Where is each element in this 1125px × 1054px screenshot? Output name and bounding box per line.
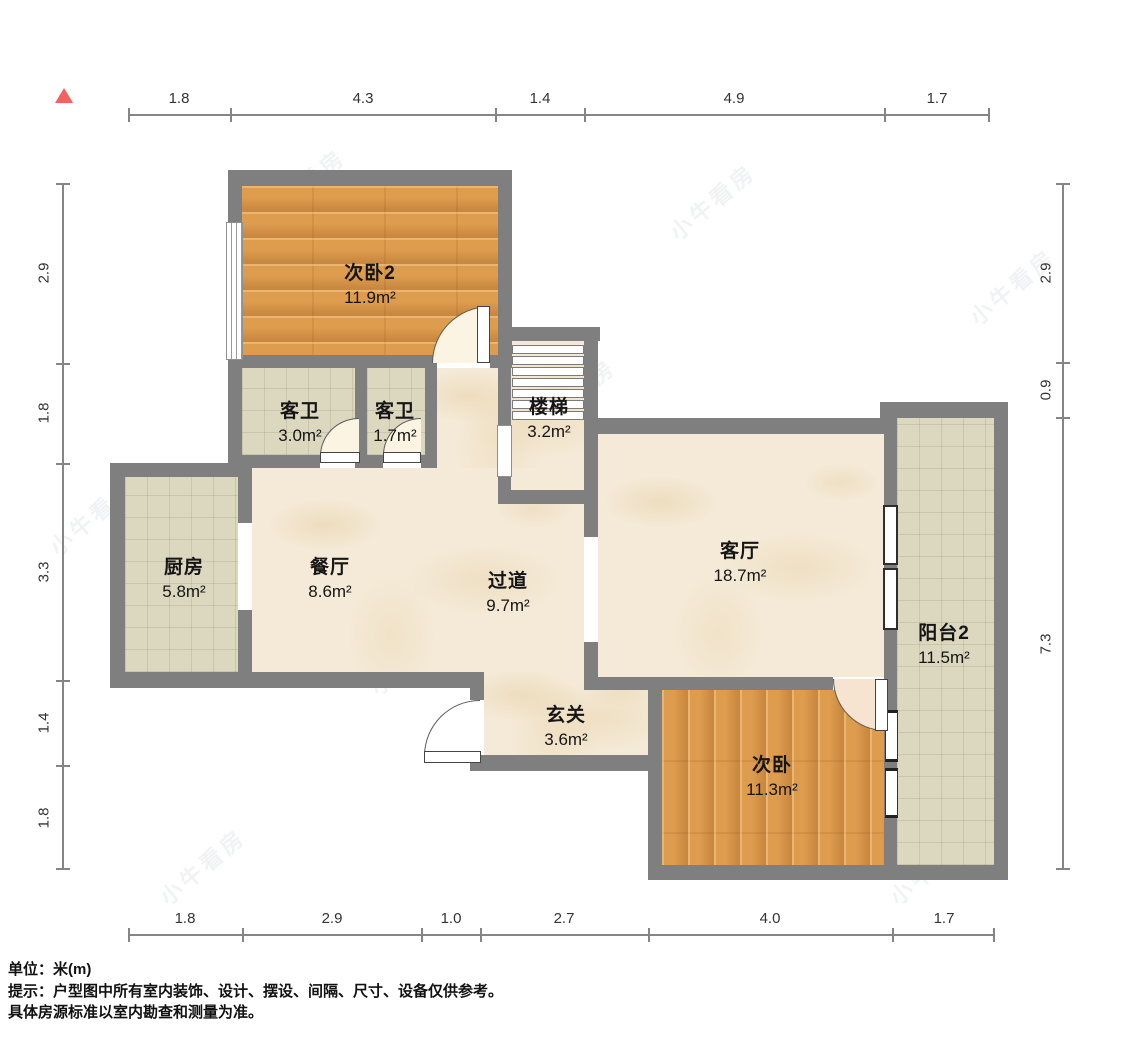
unit-note: 单位：米(m) xyxy=(8,960,91,979)
room-area: 18.7m² xyxy=(714,566,767,586)
dim-tick xyxy=(988,108,990,122)
dim-tick xyxy=(884,108,886,122)
wall xyxy=(598,418,885,434)
wall xyxy=(238,463,252,523)
dim-value: 2.9 xyxy=(36,263,53,284)
dim-tick xyxy=(56,183,70,185)
dim-value: 3.3 xyxy=(36,562,53,583)
wall xyxy=(648,677,662,877)
room-label-living: 客厅 18.7m² xyxy=(714,536,767,586)
wall xyxy=(648,865,1008,880)
dim-line xyxy=(128,934,995,936)
wall xyxy=(421,455,437,468)
floor-plan: 小牛看房 小牛看房 小牛看房 小牛看房 小牛看房 小牛看房 小牛看房 小牛看房 … xyxy=(0,0,1125,1054)
door-leaf xyxy=(875,679,888,731)
room-label-bedroom2: 次卧2 11.9m² xyxy=(344,258,396,308)
room-label-foyer: 玄关 3.6m² xyxy=(544,700,587,750)
room-name: 客卫 xyxy=(278,396,321,423)
room-name: 客厅 xyxy=(714,536,767,563)
door-leaf xyxy=(320,452,360,463)
wall xyxy=(584,677,833,690)
room-area: 3.0m² xyxy=(278,426,321,446)
watermark: 小牛看房 xyxy=(152,820,252,911)
stair-step xyxy=(512,367,584,376)
stair-step xyxy=(512,356,584,365)
dim-tick xyxy=(128,108,130,122)
dim-value: 4.9 xyxy=(724,90,745,107)
room-name: 客卫 xyxy=(373,396,416,423)
dim-tick xyxy=(56,868,70,870)
wall xyxy=(110,672,484,688)
disclaimer-line1: 提示：户型图中所有室内装饰、设计、摆设、间隔、尺寸、设备仅供参考。 xyxy=(8,982,503,1001)
dim-tick xyxy=(128,928,130,942)
dim-tick xyxy=(648,928,650,942)
room-name: 厨房 xyxy=(162,552,205,579)
wall xyxy=(228,170,512,186)
balcony-glass-door xyxy=(883,505,898,565)
wall xyxy=(994,402,1008,880)
dim-tick xyxy=(1056,362,1070,364)
room-name: 次卧2 xyxy=(344,258,396,285)
dim-value: 7.3 xyxy=(1038,634,1055,655)
dim-tick xyxy=(495,108,497,122)
room-name: 餐厅 xyxy=(308,552,351,579)
window xyxy=(885,768,898,818)
room-area: 11.3m² xyxy=(746,780,798,800)
dim-tick xyxy=(584,108,586,122)
room-name: 过道 xyxy=(486,566,529,593)
room-name: 阳台2 xyxy=(918,618,970,645)
dim-value: 2.9 xyxy=(1038,263,1055,284)
room-name: 次卧 xyxy=(746,750,798,777)
entry-door-arc xyxy=(424,700,480,756)
dim-value: 1.8 xyxy=(36,808,53,829)
dim-value: 0.9 xyxy=(1038,380,1055,401)
dim-value: 1.8 xyxy=(169,90,190,107)
window xyxy=(226,222,243,360)
room-label-corridor: 过道 9.7m² xyxy=(486,566,529,616)
dim-tick xyxy=(56,363,70,365)
watermark: 小牛看房 xyxy=(962,240,1062,331)
dim-value: 1.0 xyxy=(441,910,462,927)
dim-tick xyxy=(1056,183,1070,185)
room-label-bathroom2: 客卫 1.7m² xyxy=(373,396,416,446)
room-label-stairs: 楼梯 3.2m² xyxy=(527,392,570,442)
room-label-bathroom1: 客卫 3.0m² xyxy=(278,396,321,446)
dim-value: 4.0 xyxy=(760,910,781,927)
dim-tick xyxy=(480,928,482,942)
dim-line xyxy=(128,114,990,116)
dim-value: 1.4 xyxy=(530,90,551,107)
wall xyxy=(498,490,598,504)
door-leaf xyxy=(477,306,490,363)
room-label-balcony2: 阳台2 11.5m² xyxy=(918,618,970,668)
door-leaf xyxy=(383,452,421,463)
room-area: 9.7m² xyxy=(486,596,529,616)
wall xyxy=(425,355,437,468)
wall xyxy=(360,455,383,468)
dim-tick xyxy=(421,928,423,942)
dim-tick xyxy=(56,680,70,682)
window xyxy=(497,425,512,477)
wall xyxy=(110,463,125,688)
dim-value: 2.7 xyxy=(554,910,575,927)
room-name: 楼梯 xyxy=(527,392,570,419)
dim-value: 1.7 xyxy=(927,90,948,107)
dim-tick xyxy=(1056,868,1070,870)
dim-tick xyxy=(993,928,995,942)
dim-value: 2.9 xyxy=(322,910,343,927)
wall xyxy=(238,610,252,672)
stair-step xyxy=(512,378,584,387)
dim-line xyxy=(1062,183,1064,870)
room-label-bedroom: 次卧 11.3m² xyxy=(746,750,798,800)
dim-value: 1.4 xyxy=(36,713,53,734)
wall xyxy=(470,755,662,771)
stair-step xyxy=(512,345,584,354)
room-area: 3.6m² xyxy=(544,730,587,750)
room-label-kitchen: 厨房 5.8m² xyxy=(162,552,205,602)
room-area: 11.9m² xyxy=(344,288,396,308)
room-label-dining: 餐厅 8.6m² xyxy=(308,552,351,602)
dim-value: 4.3 xyxy=(353,90,374,107)
room-area: 1.7m² xyxy=(373,426,416,446)
room-area: 5.8m² xyxy=(162,582,205,602)
wall xyxy=(880,402,1008,418)
room-area: 8.6m² xyxy=(308,582,351,602)
dim-value: 1.7 xyxy=(934,910,955,927)
wall xyxy=(584,327,598,537)
dim-tick xyxy=(892,928,894,942)
dim-tick xyxy=(242,928,244,942)
north-indicator-icon xyxy=(55,88,73,103)
dim-tick xyxy=(230,108,232,122)
dim-value: 1.8 xyxy=(36,403,53,424)
wall xyxy=(110,463,242,477)
dim-tick xyxy=(56,765,70,767)
wall xyxy=(228,355,432,368)
disclaimer-line2: 具体房源标准以室内勘查和测量为准。 xyxy=(8,1003,263,1022)
entry-door-leaf xyxy=(424,751,481,763)
balcony-glass-door xyxy=(883,568,898,630)
room-area: 11.5m² xyxy=(918,648,970,668)
dim-tick xyxy=(1056,417,1070,419)
room-name: 玄关 xyxy=(544,700,587,727)
room-area: 3.2m² xyxy=(527,422,570,442)
dim-value: 1.8 xyxy=(175,910,196,927)
dim-tick xyxy=(56,463,70,465)
watermark: 小牛看房 xyxy=(662,155,762,246)
